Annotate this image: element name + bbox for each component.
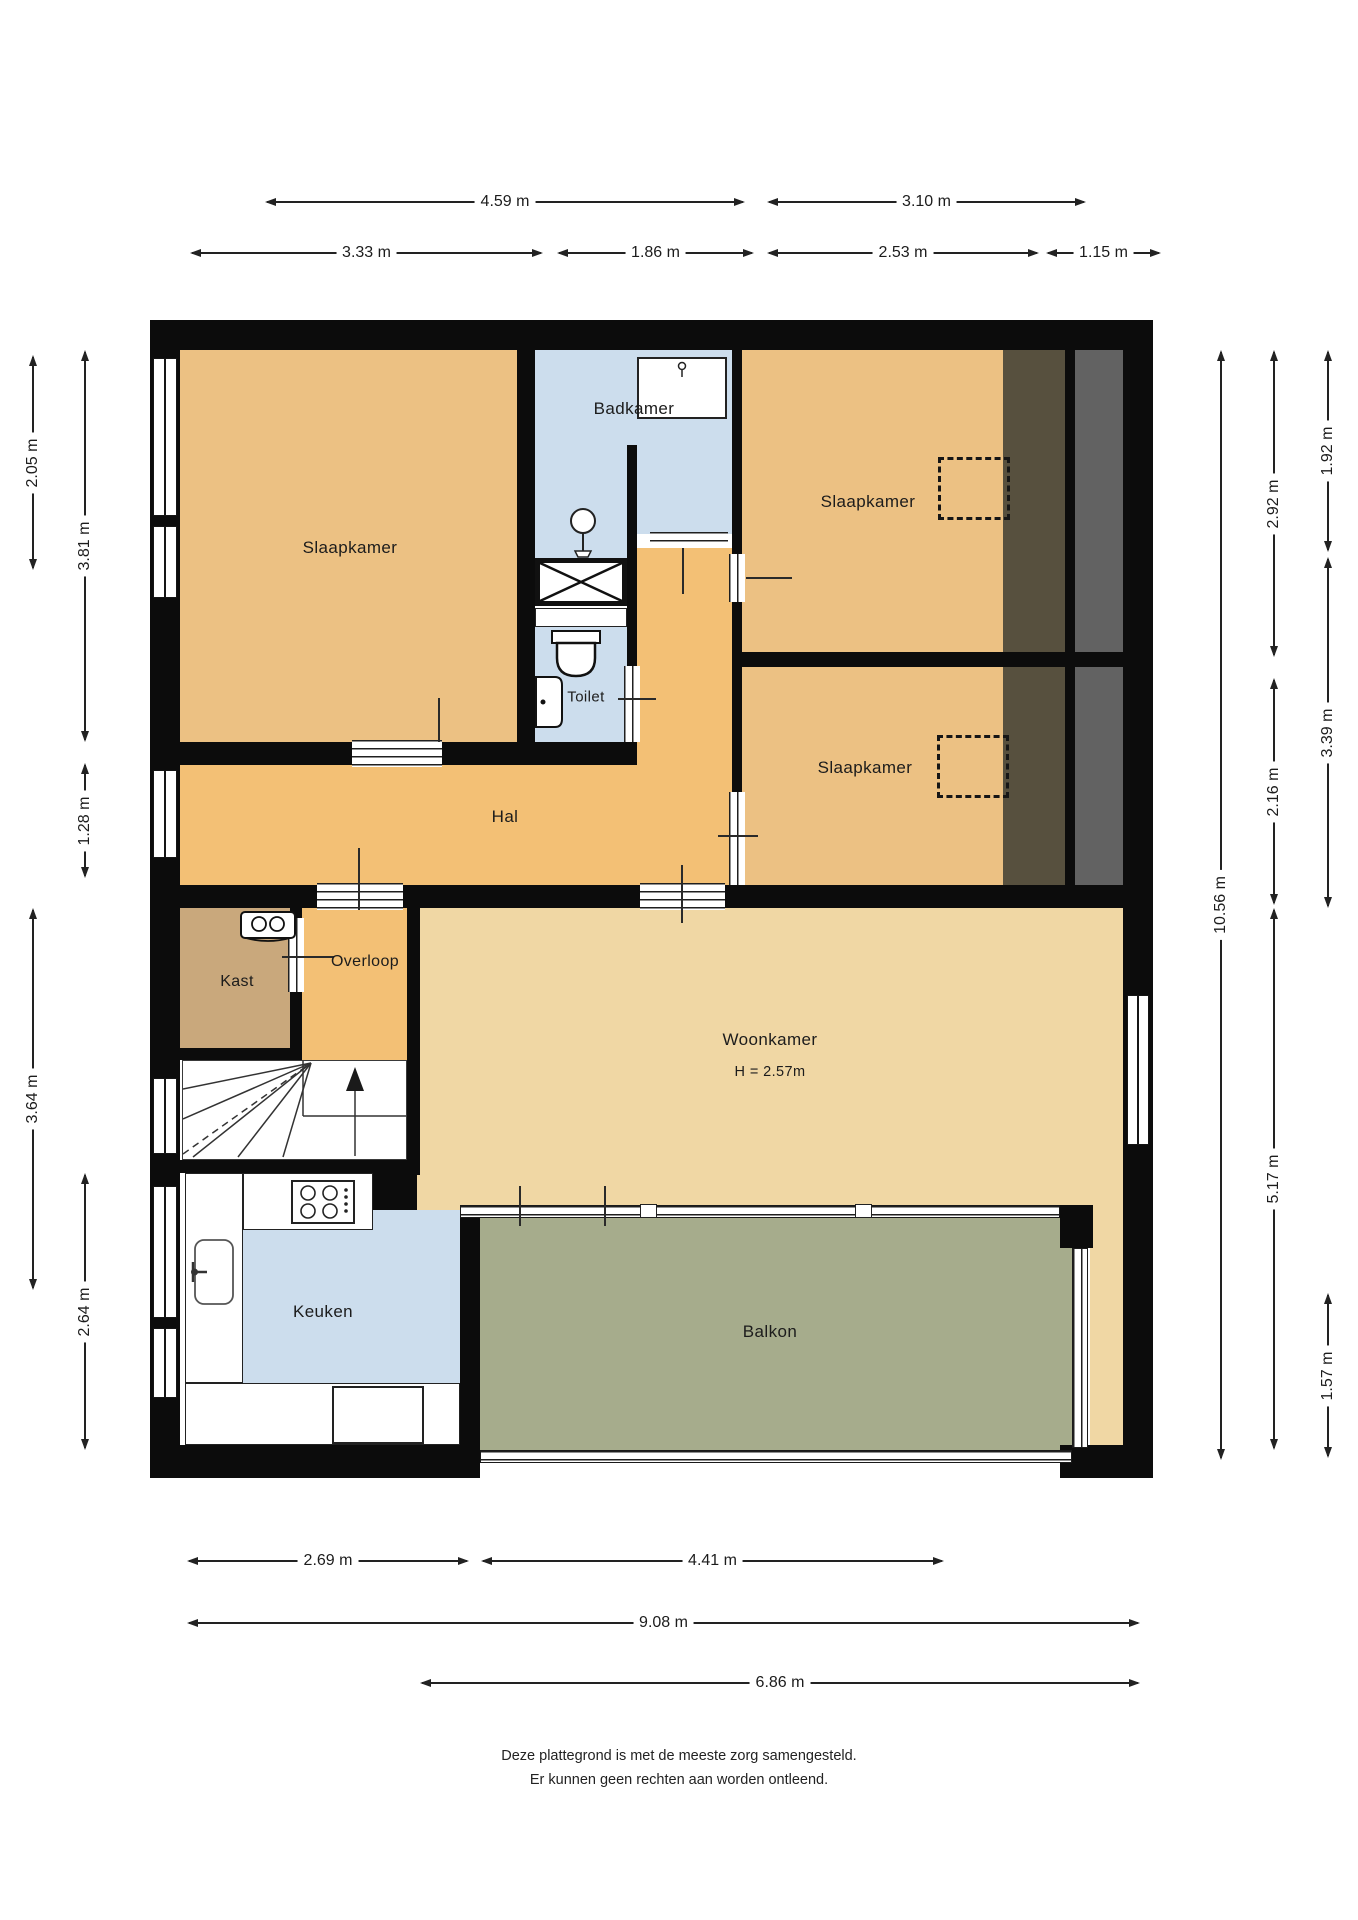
- label-badkamer: Badkamer: [594, 399, 675, 419]
- toilet-icon: [551, 630, 601, 678]
- door-tick-kast: [282, 956, 334, 958]
- balkon-tick-1: [519, 1186, 521, 1226]
- footer-disclaimer-line1: Deze plattegrond is met de meeste zorg s…: [0, 1748, 1358, 1764]
- railing-balkon-bottom: [480, 1450, 1072, 1463]
- wall-keuken-top: [150, 1160, 420, 1173]
- balkon-tick-2: [604, 1186, 606, 1226]
- stove-icon: [291, 1180, 355, 1224]
- label-kast: Kast: [220, 973, 254, 991]
- bathroom-shelf: [535, 608, 627, 627]
- wall-kast-bottom: [150, 1048, 302, 1060]
- wall-bottom-right: [1060, 1445, 1153, 1478]
- room-badkamer-right: [637, 445, 732, 534]
- window-keuken-1: [153, 1186, 177, 1318]
- label-woonkamer: Woonkamer: [723, 1030, 818, 1050]
- dormer-marker-2: [937, 735, 1009, 798]
- door-tick-badkamer: [682, 548, 684, 594]
- room-woonkamer: [417, 908, 1125, 1210]
- window-hal: [153, 770, 177, 858]
- label-hal: Hal: [492, 807, 519, 827]
- dim-right-10_56: 10.56 m: [1212, 350, 1230, 1460]
- balkon-door-mark-1: [640, 1204, 657, 1218]
- floor-plan: Slaapkamer Badkamer Slaapkamer Slaapkame…: [0, 0, 1358, 1920]
- dim-right-2_16: 2.16 m: [1265, 678, 1283, 905]
- room-hal: [180, 765, 732, 885]
- dim-right-2_92: 2.92 m: [1265, 350, 1283, 657]
- door-tick-bed-mr: [718, 835, 758, 837]
- wall-corridor-left: [627, 445, 637, 670]
- room-woonkamer-right-strip: [1090, 1210, 1125, 1445]
- label-keuken: Keuken: [293, 1302, 353, 1322]
- railing-balkon-right: [1072, 1248, 1088, 1448]
- toilet-basin-icon: [535, 676, 563, 728]
- wall-top: [150, 320, 1153, 350]
- wall-overloop-right: [407, 895, 420, 1175]
- label-slaapkamer-topright: Slaapkamer: [821, 492, 916, 512]
- window-stairs: [153, 1078, 177, 1154]
- wall-balkon-right: [1060, 1205, 1093, 1248]
- door-toilet: [624, 666, 640, 742]
- door-slaapkamer-topleft: [352, 740, 442, 767]
- dim-top-1_86: 1.86 m: [557, 244, 754, 262]
- label-slaapkamer-midright: Slaapkamer: [818, 758, 913, 778]
- window-woonkamer: [1127, 995, 1149, 1145]
- dim-right-1_57: 1.57 m: [1319, 1293, 1337, 1458]
- room-keuken-floor-b: [373, 1210, 460, 1383]
- dim-right-3_39: 3.39 m: [1319, 557, 1337, 908]
- dim-left-1_28: 1.28 m: [76, 763, 94, 878]
- door-tick-woonkamer: [681, 865, 683, 923]
- door-tick-overloop: [358, 848, 360, 910]
- wall-bottom-left: [150, 1445, 480, 1478]
- dim-bottom-9_08: 9.08 m: [187, 1614, 1140, 1632]
- roof-strip-dark-2: [1003, 667, 1065, 885]
- footer-disclaimer-line2: Er kunnen geen rechten aan worden ontlee…: [0, 1772, 1358, 1788]
- balkon-door-mark-2: [855, 1204, 872, 1218]
- wall-balkon-left: [460, 1210, 480, 1450]
- dim-left-2_64: 2.64 m: [76, 1173, 94, 1450]
- dim-top-3_33: 3.33 m: [190, 244, 543, 262]
- wall-bedroom-bathroom: [517, 350, 535, 742]
- door-slaapkamer-midright: [729, 792, 745, 885]
- dim-bottom-2_69: 2.69 m: [187, 1552, 469, 1570]
- dim-left-3_81: 3.81 m: [76, 350, 94, 742]
- door-tick-bed-tr: [746, 577, 792, 579]
- dim-left-2_05: 2.05 m: [24, 355, 42, 570]
- door-tick-toilet: [618, 698, 656, 700]
- dormer-marker-1: [938, 457, 1010, 520]
- dim-bottom-6_86: 6.86 m: [420, 1674, 1140, 1692]
- dim-right-5_17: 5.17 m: [1265, 908, 1283, 1450]
- door-tick-bed-tl: [438, 698, 440, 742]
- wall-right: [1123, 320, 1153, 1478]
- appliance-box: [332, 1386, 424, 1444]
- label-toilet: Toilet: [567, 689, 604, 706]
- roof-strip-grey-1: [1075, 350, 1123, 652]
- label-slaapkamer-topleft: Slaapkamer: [303, 538, 398, 558]
- dim-bottom-4_41: 4.41 m: [481, 1552, 944, 1570]
- wall-roof-strip-divider: [1065, 350, 1075, 885]
- wall-keuken-stub: [373, 1173, 417, 1210]
- dim-top-1_15: 1.15 m: [1046, 244, 1161, 262]
- door-badkamer: [650, 532, 728, 548]
- kitchen-sink-icon: [191, 1238, 235, 1306]
- window-keuken-2: [153, 1328, 177, 1398]
- room-overloop: [302, 908, 407, 1060]
- roof-strip-grey-2: [1075, 667, 1123, 885]
- label-overloop: Overloop: [331, 953, 399, 971]
- stairs: [182, 1060, 407, 1160]
- dim-right-1_92: 1.92 m: [1319, 350, 1337, 552]
- bathroom-sink-icon: [568, 508, 598, 558]
- roof-strip-dark-1: [1003, 350, 1065, 652]
- window-slaapkamer-1: [153, 358, 177, 516]
- door-balkon-band: [460, 1205, 1060, 1218]
- door-slaapkamer-topright: [729, 554, 745, 602]
- dim-top-4_59: 4.59 m: [265, 193, 745, 211]
- door-overloop: [317, 883, 403, 910]
- dim-top-3_10: 3.10 m: [767, 193, 1086, 211]
- stairs-up-arrow-icon: [346, 1067, 364, 1091]
- dim-top-2_53: 2.53 m: [767, 244, 1039, 262]
- label-balkon: Balkon: [743, 1322, 797, 1342]
- washing-machine-icon: [535, 558, 627, 606]
- label-woonkamer-height: H = 2.57m: [735, 1064, 806, 1080]
- dim-left-3_64: 3.64 m: [24, 908, 42, 1290]
- window-slaapkamer-2: [153, 526, 177, 598]
- boiler-icon: [240, 911, 296, 943]
